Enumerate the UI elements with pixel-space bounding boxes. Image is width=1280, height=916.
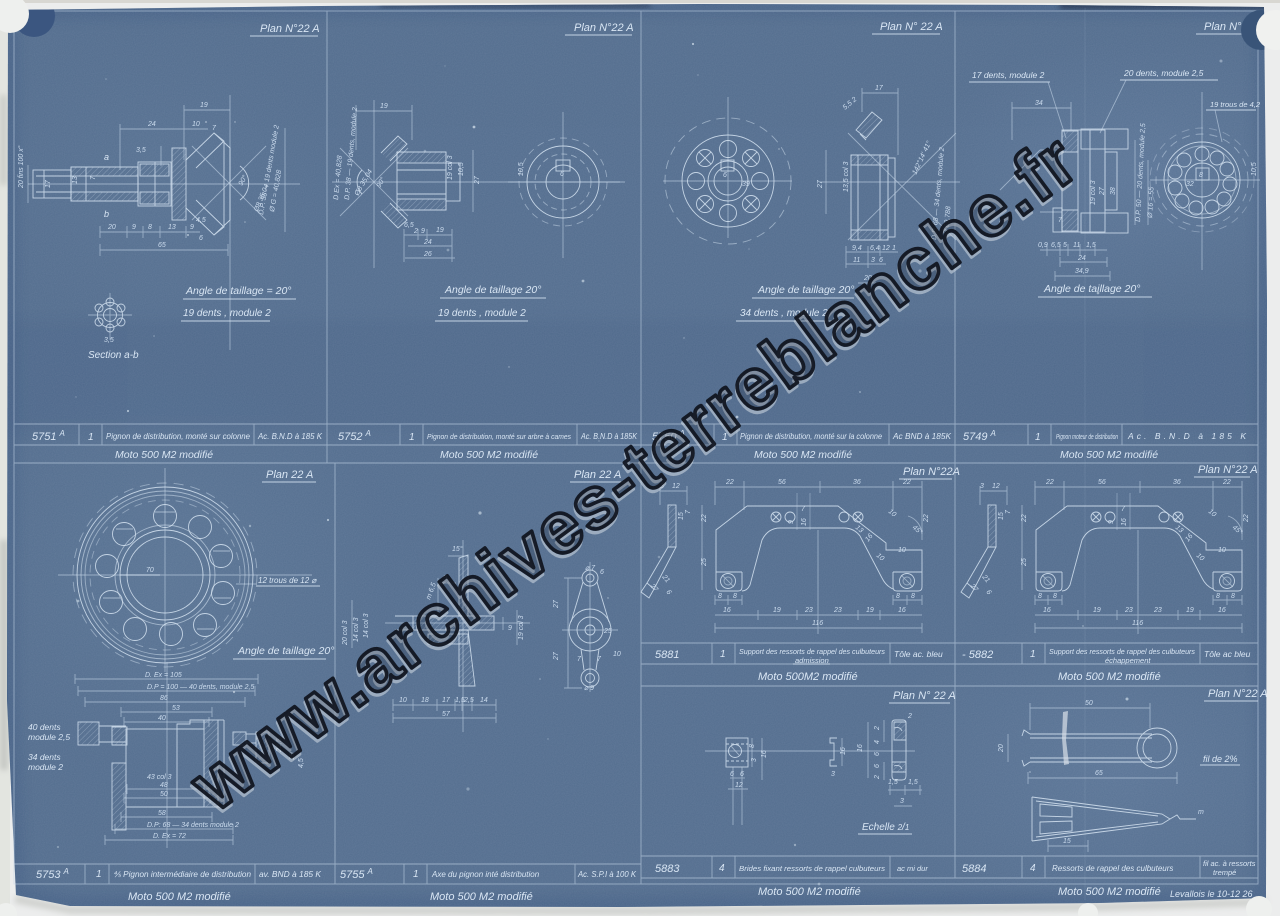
svg-text:2: 2 xyxy=(413,228,418,235)
svg-text:19: 19 xyxy=(436,227,444,234)
svg-text:4: 4 xyxy=(1030,863,1036,874)
svg-text:20 dents, module 2,5: 20 dents, module 2,5 xyxy=(1123,68,1204,78)
svg-text:Brides fixant ressorts de rap: Brides fixant ressorts de rappel culbute… xyxy=(739,864,885,873)
svg-text:25: 25 xyxy=(603,628,612,635)
svg-text:1: 1 xyxy=(720,649,726,660)
svg-text:6: 6 xyxy=(874,752,881,756)
svg-text:Plan N°22 A: Plan N°22 A xyxy=(260,23,320,35)
svg-text:4: 4 xyxy=(719,863,725,874)
svg-text:27: 27 xyxy=(474,175,481,185)
svg-text:Angle de taillage 20°: Angle de taillage 20° xyxy=(1043,283,1140,295)
svg-text:Pignon de distribution, monté: Pignon de distribution, monté sur la col… xyxy=(740,432,883,441)
svg-text:19 col 3: 19 col 3 xyxy=(518,615,525,640)
svg-text:13: 13 xyxy=(168,224,176,231)
svg-text:6: 6 xyxy=(740,771,744,778)
svg-text:8: 8 xyxy=(896,593,900,600)
svg-text:Moto 500 M2 modifié: Moto 500 M2 modifié xyxy=(758,886,861,898)
svg-text:9: 9 xyxy=(132,224,136,231)
svg-text:⌀ 7: ⌀ 7 xyxy=(585,565,596,572)
svg-text:15: 15 xyxy=(1063,838,1071,845)
svg-text:Ac BND à 185K: Ac BND à 185K xyxy=(892,432,952,441)
svg-text:34,9: 34,9 xyxy=(1075,268,1089,275)
svg-text:1,5: 1,5 xyxy=(908,779,918,786)
svg-text:12 trous de 12 ⌀: 12 trous de 12 ⌀ xyxy=(258,576,317,585)
svg-text:4: 4 xyxy=(874,740,881,744)
svg-text:Plan N° 22 A: Plan N° 22 A xyxy=(880,21,943,33)
svg-text:65: 65 xyxy=(1095,770,1103,777)
svg-text:Moto 500 M2 modifié: Moto 500 M2 modifié xyxy=(430,891,533,903)
svg-text:Plan 22 A: Plan 22 A xyxy=(266,469,313,481)
svg-text:24: 24 xyxy=(423,239,432,246)
svg-text:av. BND à 185 K: av. BND à 185 K xyxy=(259,870,322,879)
svg-text:3: 3 xyxy=(751,758,758,762)
svg-text:16: 16 xyxy=(840,747,847,755)
svg-text:70: 70 xyxy=(146,567,154,574)
svg-text:1: 1 xyxy=(1030,649,1036,660)
svg-text:a: a xyxy=(104,152,109,162)
svg-text:16: 16 xyxy=(801,518,808,526)
svg-text:4,5: 4,5 xyxy=(196,217,206,224)
svg-text:20 fins 100 x°: 20 fins 100 x° xyxy=(17,145,25,189)
svg-text:Pignon de distribution, monté: Pignon de distribution, monté sur colonn… xyxy=(106,432,251,441)
svg-text:19 col 3: 19 col 3 xyxy=(1090,180,1097,205)
svg-text:18: 18 xyxy=(421,697,429,704)
svg-text:Ac. B.N.D à 185 K: Ac. B.N.D à 185 K xyxy=(1127,431,1246,441)
svg-text:Plan N° 22 A: Plan N° 22 A xyxy=(893,690,956,702)
svg-text:Ac. B.N.D à 185 K: Ac. B.N.D à 185 K xyxy=(257,432,323,441)
svg-text:53: 53 xyxy=(172,705,180,712)
svg-text:16: 16 xyxy=(898,607,906,614)
svg-text:Tôle ac bleu: Tôle ac bleu xyxy=(1204,649,1251,659)
svg-text:38: 38 xyxy=(1110,187,1117,195)
svg-text:20: 20 xyxy=(107,224,116,231)
svg-text:2: 2 xyxy=(907,713,912,720)
svg-text:10: 10 xyxy=(898,547,906,554)
svg-text:6: 6 xyxy=(600,569,604,576)
svg-text:9,4: 9,4 xyxy=(852,245,862,252)
svg-text:24: 24 xyxy=(1077,255,1086,262)
svg-text:50: 50 xyxy=(1085,700,1093,707)
svg-text:19: 19 xyxy=(200,102,208,109)
svg-text:Plan N°22 A: Plan N°22 A xyxy=(1208,688,1268,700)
svg-text:19 dents , module 2: 19 dents , module 2 xyxy=(438,308,526,319)
svg-text:1,5: 1,5 xyxy=(1086,242,1096,249)
svg-text:module 2: module 2 xyxy=(28,762,63,772)
svg-text:D.P = 100 — 40 dents, module: D.P = 100 — 40 dents, module 2,5 xyxy=(147,684,254,691)
svg-text:Tôle ac. bleu: Tôle ac. bleu xyxy=(894,649,943,659)
svg-text:10,5: 10,5 xyxy=(458,162,465,176)
svg-text:Ressorts de rappel des culbute: Ressorts de rappel des culbuteurs xyxy=(1052,864,1173,873)
svg-text:6: 6 xyxy=(730,771,734,778)
svg-text:3: 3 xyxy=(900,798,904,805)
svg-text:15: 15 xyxy=(678,512,685,520)
svg-text:6,5: 6,5 xyxy=(1051,242,1061,249)
svg-text:19 trous de 4,2: 19 trous de 4,2 xyxy=(1210,100,1261,109)
svg-text:Pignon moteur de distribution: Pignon moteur de distribution xyxy=(1056,432,1118,441)
svg-text:32: 32 xyxy=(1186,181,1194,188)
svg-text:9: 9 xyxy=(421,228,425,235)
svg-text:16: 16 xyxy=(857,744,864,752)
svg-text:40 dents: 40 dents xyxy=(28,722,61,732)
svg-text:5884: 5884 xyxy=(962,863,986,875)
svg-text:1: 1 xyxy=(1035,432,1041,443)
svg-text:fil ac. à ressorts: fil ac. à ressorts xyxy=(1203,859,1256,868)
svg-text:19 col 3: 19 col 3 xyxy=(447,155,454,180)
svg-text:17 dents, module 2: 17 dents, module 2 xyxy=(972,70,1045,80)
svg-text:8: 8 xyxy=(1199,172,1203,179)
svg-text:Moto 500 M2 modifié: Moto 500 M2 modifié xyxy=(1058,886,1161,898)
svg-text:1: 1 xyxy=(413,869,419,880)
svg-text:58: 58 xyxy=(158,810,166,817)
svg-text:Moto 500 M2 modifié: Moto 500 M2 modifié xyxy=(115,449,213,461)
svg-text:8: 8 xyxy=(718,593,722,600)
svg-text:8: 8 xyxy=(148,224,152,231)
svg-text:6,5: 6,5 xyxy=(404,222,414,229)
svg-text:20: 20 xyxy=(998,744,1005,753)
svg-text:2,5: 2,5 xyxy=(463,697,474,704)
svg-text:23: 23 xyxy=(833,607,842,614)
svg-text:Angle de taillage = 20°: Angle de taillage = 20° xyxy=(185,285,292,297)
svg-text:2: 2 xyxy=(874,775,881,780)
svg-text:Moto 500 M2 modifié: Moto 500 M2 modifié xyxy=(1058,671,1161,683)
svg-text:6: 6 xyxy=(874,764,881,768)
svg-text:Moto 500 M2 modifié: Moto 500 M2 modifié xyxy=(754,449,852,461)
svg-text:2: 2 xyxy=(874,726,881,731)
svg-text:57: 57 xyxy=(442,711,451,718)
svg-text:17: 17 xyxy=(45,179,52,188)
svg-text:Support des ressorts de rappel: Support des ressorts de rappel des culbu… xyxy=(739,649,885,656)
svg-text:36: 36 xyxy=(853,479,861,486)
svg-text:27: 27 xyxy=(1099,186,1106,196)
svg-text:43 col 3: 43 col 3 xyxy=(147,774,172,781)
svg-text:1: 1 xyxy=(96,869,102,880)
svg-text:5881: 5881 xyxy=(655,649,679,661)
svg-text:12: 12 xyxy=(735,782,743,789)
svg-text:D. Ex = 72: D. Ex = 72 xyxy=(153,833,186,840)
svg-text:5883: 5883 xyxy=(655,863,680,875)
svg-text:9: 9 xyxy=(788,520,795,524)
svg-text:6: 6 xyxy=(723,172,727,179)
svg-text:13,5 col 3: 13,5 col 3 xyxy=(843,162,850,192)
svg-text:1: 1 xyxy=(88,432,94,443)
svg-text:19: 19 xyxy=(866,607,874,614)
svg-text:1: 1 xyxy=(409,432,415,443)
svg-text:34: 34 xyxy=(1035,100,1043,107)
svg-text:fil de 2%: fil de 2% xyxy=(1203,754,1238,764)
svg-text:⌀ 9: ⌀ 9 xyxy=(584,685,594,692)
svg-text:3,5: 3,5 xyxy=(104,337,114,344)
svg-text:22: 22 xyxy=(725,479,734,486)
svg-text:Echelle 2/1: Echelle 2/1 xyxy=(862,822,909,833)
svg-text:Plan N°22A: Plan N°22A xyxy=(903,466,960,478)
svg-text:17: 17 xyxy=(442,697,451,704)
svg-text:3: 3 xyxy=(831,771,835,778)
svg-text:22: 22 xyxy=(902,479,911,486)
svg-text:19: 19 xyxy=(380,103,388,110)
svg-text:40: 40 xyxy=(158,715,166,722)
svg-text:9: 9 xyxy=(508,625,512,632)
svg-text:24: 24 xyxy=(147,121,156,128)
svg-text:Angle de taillage 20°: Angle de taillage 20° xyxy=(444,284,541,296)
svg-text:27: 27 xyxy=(817,179,824,189)
svg-text:Pignon de distribution, monté: Pignon de distribution, monté sur arbre … xyxy=(427,432,571,441)
svg-text:11: 11 xyxy=(1073,242,1080,249)
svg-text:⅘ Pignon intermédiaire de dist: ⅘ Pignon intermédiaire de distribution xyxy=(113,870,251,879)
svg-text:Moto 500M2 modifié: Moto 500M2 modifié xyxy=(758,671,858,683)
svg-text:m: m xyxy=(1198,809,1204,816)
svg-text:1,5: 1,5 xyxy=(888,779,898,786)
svg-text:Plan N°22 A: Plan N°22 A xyxy=(574,22,634,34)
svg-text:ac mi dur: ac mi dur xyxy=(897,864,928,873)
svg-text:3,5: 3,5 xyxy=(136,147,146,154)
svg-text:10: 10 xyxy=(613,651,621,658)
svg-text:9: 9 xyxy=(190,224,194,231)
svg-text:10,5: 10,5 xyxy=(518,162,525,176)
svg-text:trempé: trempé xyxy=(1213,868,1236,877)
svg-text:56: 56 xyxy=(778,479,786,486)
svg-text:8: 8 xyxy=(911,593,915,600)
svg-text:116: 116 xyxy=(812,620,823,627)
svg-text:10,5: 10,5 xyxy=(1251,162,1258,176)
svg-text:Ac. S.P.I à 100 K: Ac. S.P.I à 100 K xyxy=(577,870,637,879)
svg-text:0,9: 0,9 xyxy=(1038,242,1048,249)
svg-text:13: 13 xyxy=(72,176,79,184)
svg-text:19: 19 xyxy=(773,607,781,614)
svg-text:26: 26 xyxy=(423,251,432,258)
svg-text:27: 27 xyxy=(553,651,560,661)
svg-text:39: 39 xyxy=(742,181,750,188)
svg-text:16: 16 xyxy=(723,607,731,614)
svg-text:D. Ex = 105: D. Ex = 105 xyxy=(145,672,182,679)
svg-text:- 5882: - 5882 xyxy=(962,649,993,661)
svg-text:34 dents: 34 dents xyxy=(28,752,61,762)
svg-text:b: b xyxy=(104,209,109,219)
svg-text:8: 8 xyxy=(733,593,737,600)
svg-text:Plan N°22 A: Plan N°22 A xyxy=(1198,464,1258,476)
svg-text:Axe du pignon inté distributio: Axe du pignon inté distribution xyxy=(431,870,540,879)
svg-text:22: 22 xyxy=(923,514,930,523)
svg-text:19 dents , module 2: 19 dents , module 2 xyxy=(183,308,271,319)
svg-text:23: 23 xyxy=(804,607,813,614)
svg-text:27: 27 xyxy=(553,599,560,609)
svg-text:Levallois le 10-12 26: Levallois le 10-12 26 xyxy=(1170,889,1253,899)
svg-text:17: 17 xyxy=(875,85,884,92)
svg-text:Support des ressorts de rappel: Support des ressorts de rappel des culbu… xyxy=(1049,649,1195,656)
svg-text:5: 5 xyxy=(1063,242,1067,249)
svg-text:65: 65 xyxy=(158,242,166,249)
svg-text:14: 14 xyxy=(480,697,488,704)
svg-text:Section a-b: Section a-b xyxy=(88,350,139,361)
svg-text:8: 8 xyxy=(749,744,756,748)
svg-text:16: 16 xyxy=(761,750,768,758)
svg-text:Moto 500 M2 modifié: Moto 500 M2 modifié xyxy=(440,449,538,461)
svg-text:Moto 500 M2 modifié: Moto 500 M2 modifié xyxy=(1060,449,1158,461)
svg-text:Moto 500 M2 modifié: Moto 500 M2 modifié xyxy=(128,891,231,903)
svg-text:6: 6 xyxy=(199,235,203,242)
svg-text:échappement: échappement xyxy=(1105,656,1151,665)
svg-text:10: 10 xyxy=(192,121,200,128)
svg-text:module 2,5: module 2,5 xyxy=(28,732,70,742)
